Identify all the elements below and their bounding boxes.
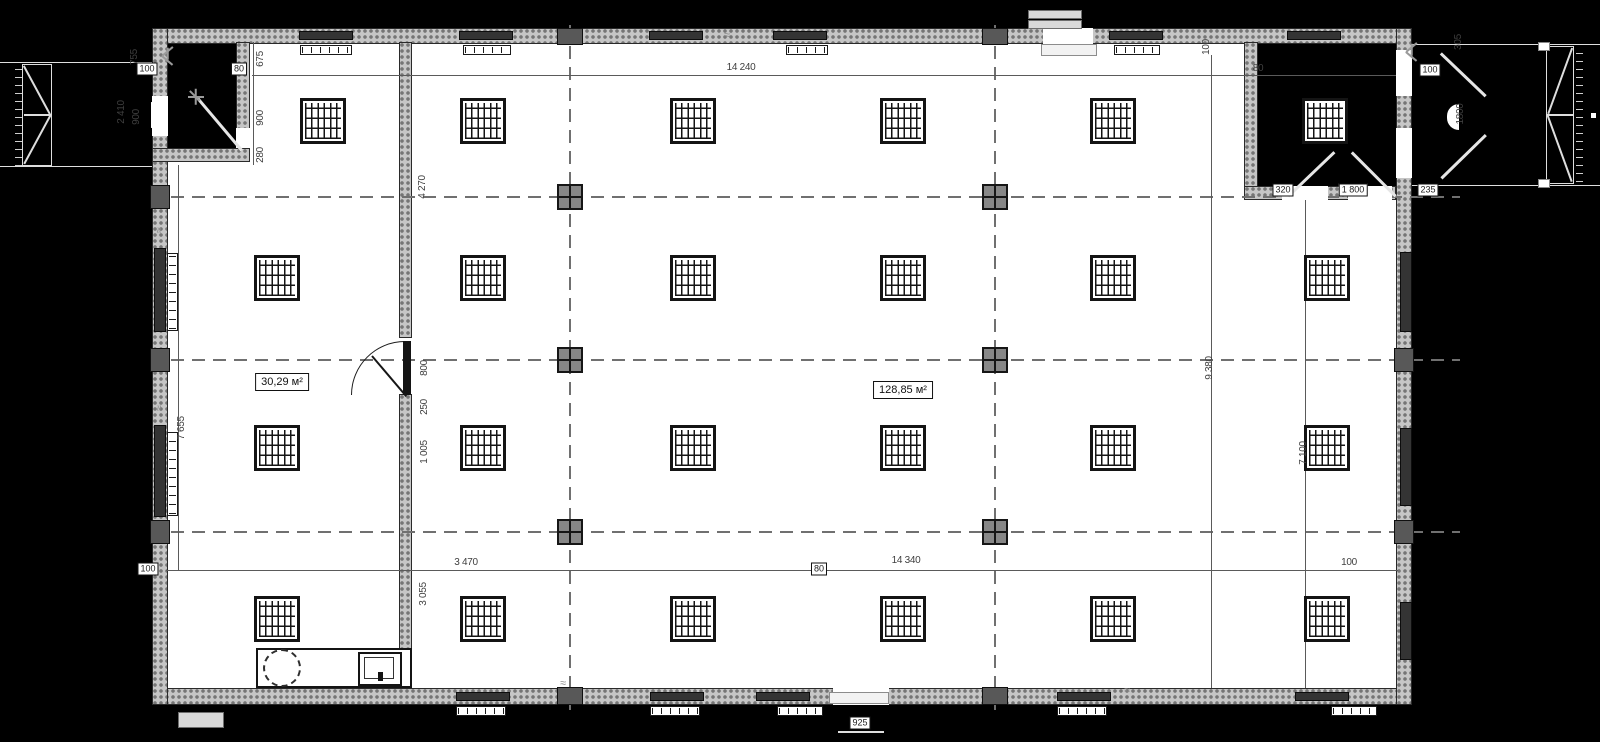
dim-label-280: 280 bbox=[256, 147, 266, 163]
ramp-right-post bbox=[1538, 42, 1550, 51]
dim-label-800: 800 bbox=[420, 360, 430, 376]
dimension-line-top bbox=[252, 75, 1412, 76]
branch-symbol bbox=[167, 48, 169, 60]
wall-window bbox=[650, 692, 704, 701]
branch-symbol bbox=[1411, 44, 1413, 56]
wall-window bbox=[756, 692, 810, 701]
wall-column bbox=[150, 520, 170, 544]
column-marker bbox=[982, 184, 1008, 210]
wall-window bbox=[1287, 31, 1341, 40]
wave-mark: ≈ bbox=[724, 31, 730, 42]
dim-label-4270: 4 270 bbox=[418, 175, 428, 199]
wall-column bbox=[557, 28, 583, 45]
window-grid-bars bbox=[885, 260, 921, 296]
window-grid bbox=[670, 425, 716, 471]
dim-label-755: 755 bbox=[130, 49, 140, 65]
counter-circle bbox=[263, 649, 301, 687]
window-grid bbox=[254, 425, 300, 471]
door-gap-top-entrance bbox=[1043, 28, 1093, 44]
ramp-rail bbox=[1412, 185, 1600, 186]
area-label-left-room: 30,29 м² bbox=[255, 373, 309, 391]
wall-window bbox=[299, 31, 353, 40]
wave-mark: ≈ bbox=[560, 679, 566, 690]
ramp-left-treads bbox=[15, 66, 22, 166]
entrance-step-bottom-left bbox=[178, 712, 224, 728]
dim-label-80-right: 80 bbox=[1253, 64, 1264, 74]
window-grid bbox=[1304, 255, 1350, 301]
wall-window bbox=[1400, 428, 1412, 506]
window-grid-bars bbox=[259, 430, 295, 466]
radiator-fins bbox=[1333, 708, 1375, 714]
ramp-left-midline bbox=[24, 114, 52, 116]
window-grid-bars bbox=[465, 601, 501, 637]
wall-vestibule-tl-bottom bbox=[152, 148, 250, 162]
dim-label-9380: 9 380 bbox=[1205, 356, 1215, 380]
column-marker-cross bbox=[559, 349, 581, 371]
column-marker bbox=[557, 519, 583, 545]
entrance-step-top bbox=[1028, 20, 1082, 29]
window-grid bbox=[1090, 596, 1136, 642]
door-swing-line-exterior-right bbox=[1440, 52, 1487, 97]
wall-column bbox=[982, 28, 1008, 45]
ramp-right-dot bbox=[1591, 113, 1596, 118]
window-grid bbox=[460, 425, 506, 471]
column-marker-cross bbox=[559, 186, 581, 208]
column-marker bbox=[557, 184, 583, 210]
radiator-fins bbox=[465, 47, 509, 53]
radiator-fins bbox=[458, 708, 504, 714]
entrance-step-top bbox=[1028, 10, 1082, 19]
dim-label-100-bottom-right: 100 bbox=[1341, 558, 1357, 568]
window-grid-bars bbox=[675, 601, 711, 637]
window-grid-bars bbox=[885, 601, 921, 637]
ramp-right-treads bbox=[1576, 48, 1583, 182]
radiator-fins bbox=[1059, 708, 1105, 714]
dim-label-3470: 3 470 bbox=[454, 558, 478, 568]
wall-column bbox=[150, 185, 170, 209]
dim-label-1800-v: 1800 bbox=[1456, 103, 1466, 124]
floor-plan-canvas: ≈≈≈≈≈14 240803 47014 3401008010010080925… bbox=[0, 0, 1600, 742]
radiator-fins bbox=[788, 47, 826, 53]
column-marker bbox=[982, 347, 1008, 373]
window-grid bbox=[460, 255, 506, 301]
radiator-fins bbox=[169, 255, 176, 329]
radiator-fins bbox=[1116, 47, 1158, 53]
radiator-fins bbox=[652, 708, 698, 714]
window-grid-bars bbox=[259, 260, 295, 296]
dim-label-675: 675 bbox=[256, 51, 266, 67]
wall-column bbox=[1394, 520, 1414, 544]
dim-label-80-left: 80 bbox=[231, 63, 247, 76]
wave-mark: ≈ bbox=[153, 227, 164, 233]
wall-column bbox=[150, 348, 170, 372]
window-grid-bars bbox=[1095, 430, 1131, 466]
ramp-right-post bbox=[1538, 179, 1550, 188]
dim-label-7100: 7 100 bbox=[1299, 441, 1309, 465]
entrance-landing-top bbox=[1041, 44, 1097, 56]
dim-label-100-top: 100 bbox=[1202, 39, 1212, 55]
window-grid-bars bbox=[259, 601, 295, 637]
wall-window bbox=[456, 692, 510, 701]
window-grid bbox=[880, 98, 926, 144]
dimension-line-7655 bbox=[178, 165, 179, 570]
dim-label-1005: 1 005 bbox=[420, 440, 430, 464]
window-grid-bars bbox=[465, 260, 501, 296]
wall-window bbox=[154, 248, 166, 332]
radiator bbox=[777, 706, 823, 716]
window-grid bbox=[880, 596, 926, 642]
dimension-line-bottom bbox=[166, 570, 1398, 571]
wall-column bbox=[982, 687, 1008, 705]
wall-interior-upper bbox=[399, 42, 412, 338]
wave-mark: ≈ bbox=[153, 405, 164, 411]
dim-label-305: 305 bbox=[1454, 34, 1464, 50]
axis-line-horizontal bbox=[150, 359, 1460, 361]
radiator bbox=[456, 706, 506, 716]
radiator-fins bbox=[169, 434, 176, 514]
door-swing-line-exterior-right bbox=[1441, 134, 1487, 179]
window-grid-bars bbox=[675, 260, 711, 296]
dim-label-235: 235 bbox=[1417, 184, 1438, 197]
window-grid-bars bbox=[1309, 430, 1345, 466]
window-grid-bars bbox=[675, 103, 711, 139]
window-grid bbox=[1302, 98, 1348, 144]
column-marker bbox=[557, 347, 583, 373]
wall-window bbox=[649, 31, 703, 40]
window-grid bbox=[1304, 596, 1350, 642]
entrance-step-bottom-edge bbox=[838, 731, 884, 733]
wall-window bbox=[1295, 692, 1349, 701]
entrance-step-bottom bbox=[829, 692, 889, 704]
window-grid bbox=[670, 596, 716, 642]
radiator-fins bbox=[779, 708, 821, 714]
axis-line-horizontal bbox=[150, 196, 1460, 198]
dim-label-80-bottom: 80 bbox=[811, 563, 827, 576]
column-marker-cross bbox=[984, 521, 1006, 543]
column-marker bbox=[982, 519, 1008, 545]
window-grid-bars bbox=[1309, 260, 1345, 296]
dim-label-7655: 7 655 bbox=[177, 416, 187, 440]
wall-column bbox=[557, 687, 583, 705]
wall-window bbox=[1109, 31, 1163, 40]
radiator bbox=[1331, 706, 1377, 716]
sink-tap bbox=[378, 672, 383, 681]
wall-column bbox=[1394, 348, 1414, 372]
dim-label-2410: 2 410 bbox=[117, 100, 127, 124]
window-grid bbox=[670, 255, 716, 301]
window-grid-bars bbox=[305, 103, 341, 139]
wall-window bbox=[1400, 252, 1412, 332]
door-leaf bbox=[403, 341, 411, 395]
ramp-rail bbox=[1412, 44, 1600, 45]
window-grid bbox=[300, 98, 346, 144]
window-grid-bars bbox=[1095, 260, 1131, 296]
window-grid-bars bbox=[465, 103, 501, 139]
dim-label-100-bottom-left: 100 bbox=[137, 563, 158, 576]
dim-label-250: 250 bbox=[420, 399, 430, 415]
wall-window bbox=[1057, 692, 1111, 701]
window-grid bbox=[880, 425, 926, 471]
ramp-right-midline bbox=[1546, 114, 1574, 116]
wall-interior-lower bbox=[399, 394, 412, 688]
dim-label-bottom-width: 14 340 bbox=[892, 556, 921, 566]
wave-mark: ≈ bbox=[1124, 686, 1130, 697]
window-grid bbox=[1090, 98, 1136, 144]
door-gap-vestibule-tr-upper bbox=[1396, 50, 1412, 96]
radiator bbox=[463, 45, 511, 55]
dim-label-3055: 3 055 bbox=[419, 582, 429, 606]
radiator bbox=[786, 45, 828, 55]
window-grid-bars bbox=[675, 430, 711, 466]
dim-label-925: 925 bbox=[849, 717, 870, 730]
dim-label-320: 320 bbox=[1272, 184, 1293, 197]
window-grid-bars bbox=[1307, 103, 1343, 139]
window-grid bbox=[460, 98, 506, 144]
radiator bbox=[1057, 706, 1107, 716]
window-grid-bars bbox=[1095, 601, 1131, 637]
window-grid bbox=[1304, 425, 1350, 471]
window-grid-bars bbox=[885, 103, 921, 139]
window-grid-bars bbox=[465, 430, 501, 466]
window-grid bbox=[880, 255, 926, 301]
column-marker-cross bbox=[984, 349, 1006, 371]
column-marker-cross bbox=[559, 521, 581, 543]
dim-label-top-width: 14 240 bbox=[727, 63, 756, 73]
column-marker-cross bbox=[984, 186, 1006, 208]
window-grid bbox=[254, 596, 300, 642]
axis-line-horizontal bbox=[150, 531, 1460, 533]
radiator bbox=[300, 45, 352, 55]
radiator bbox=[1114, 45, 1160, 55]
radiator bbox=[167, 253, 178, 331]
wall-window bbox=[459, 31, 513, 40]
window-grid-bars bbox=[885, 430, 921, 466]
door-gap-vestibule-tr-lower bbox=[1396, 128, 1412, 178]
window-grid bbox=[1090, 425, 1136, 471]
dim-label-900: 900 bbox=[256, 110, 266, 126]
radiator bbox=[167, 432, 178, 516]
dim-label-1800: 1 800 bbox=[1339, 184, 1368, 197]
window-grid bbox=[1090, 255, 1136, 301]
window-grid bbox=[254, 255, 300, 301]
wall-window bbox=[1400, 602, 1412, 660]
window-grid-bars bbox=[1095, 103, 1131, 139]
window-grid bbox=[670, 98, 716, 144]
radiator bbox=[650, 706, 700, 716]
ramp-rail bbox=[0, 166, 152, 167]
wall-window bbox=[154, 425, 166, 517]
wall-window bbox=[773, 31, 827, 40]
area-label-main-hall: 128,85 м² bbox=[873, 381, 933, 399]
dimension-line-chain bbox=[253, 42, 254, 165]
radiator-fins bbox=[302, 47, 350, 53]
window-grid-bars bbox=[1309, 601, 1345, 637]
window-grid bbox=[460, 596, 506, 642]
dim-label-900-tl: 900 bbox=[132, 109, 142, 125]
dim-label-100-tr: 100 bbox=[1419, 64, 1440, 77]
